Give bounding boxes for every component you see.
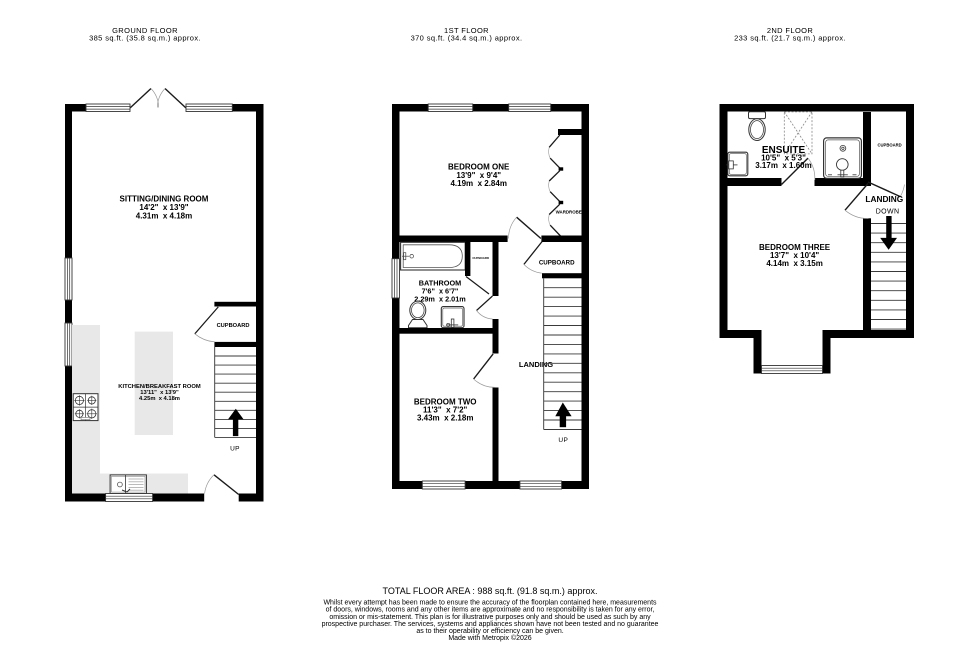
svg-text:CUPBOARD: CUPBOARD [877,143,901,148]
svg-text:4.31m x 4.18m: 4.31m x 4.18m [136,211,192,220]
svg-text:4.14m x 3.15m: 4.14m x 3.15m [766,259,822,268]
svg-text:as to their operability or eff: as to their operability or efficiency ca… [416,628,563,635]
svg-text:DOWN: DOWN [876,209,900,216]
svg-text:WARDROBE: WARDROBE [556,210,582,215]
svg-text:233 sq.ft. (21.7 sq.m.) approx: 233 sq.ft. (21.7 sq.m.) approx. [734,34,846,43]
svg-text:385 sq.ft. (35.8 sq.m.) approx: 385 sq.ft. (35.8 sq.m.) approx. [89,34,201,43]
svg-text:UP: UP [558,437,568,444]
svg-text:370 sq.ft. (34.4 sq.m.) approx: 370 sq.ft. (34.4 sq.m.) approx. [411,34,523,43]
svg-text:TOTAL FLOOR AREA : 988 sq.ft.: TOTAL FLOOR AREA : 988 sq.ft. (91.8 sq.m… [383,586,598,596]
svg-text:omission or mis-statement. Thi: omission or mis-statement. This plan is … [329,614,651,621]
svg-text:CUPBOARD: CUPBOARD [539,259,575,266]
svg-text:Made with Metropix ©2026: Made with Metropix ©2026 [448,634,531,642]
svg-text:LANDING: LANDING [865,194,903,204]
svg-text:prospective purchaser. The ser: prospective purchaser. The services, sys… [322,621,659,628]
svg-text:LANDING: LANDING [519,360,553,369]
svg-text:4.19m x 2.84m: 4.19m x 2.84m [450,179,506,188]
svg-text:3.43m x 2.18m: 3.43m x 2.18m [417,413,473,422]
svg-text:Whilst every attempt has been: Whilst every attempt has been made to en… [323,600,657,607]
svg-text:4.25m x 4.18m: 4.25m x 4.18m [139,396,180,402]
svg-text:CUPBOARD: CUPBOARD [472,256,489,260]
svg-text:CUPBOARD: CUPBOARD [217,323,250,329]
svg-text:3.17m x 1.60m: 3.17m x 1.60m [755,161,811,170]
svg-text:UP: UP [230,446,240,453]
svg-text:of doors, windows, rooms and a: of doors, windows, rooms and any other i… [326,607,655,614]
